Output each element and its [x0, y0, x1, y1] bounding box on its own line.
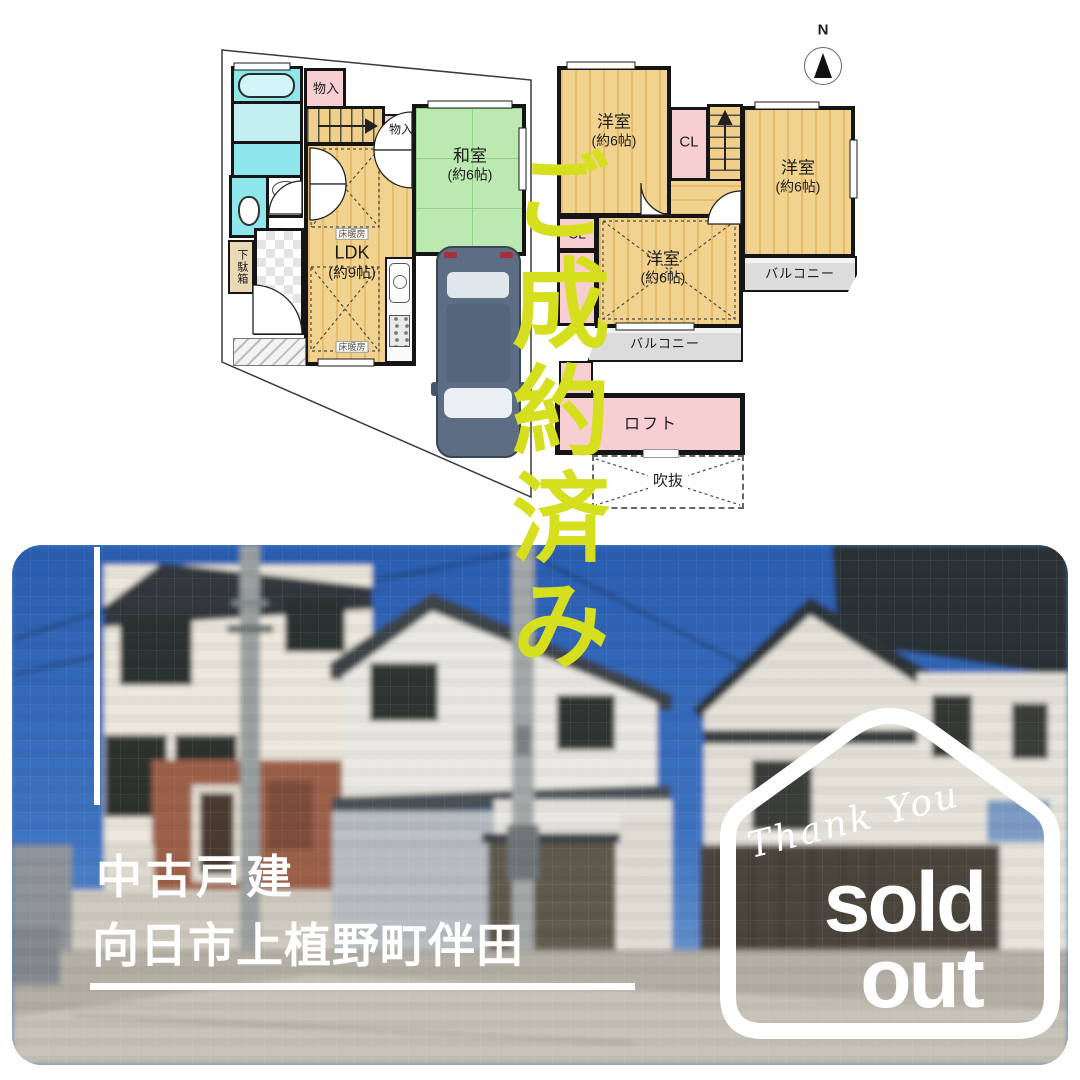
sink-icon — [272, 181, 299, 199]
label-closet-1f-b: 物入 — [389, 123, 413, 138]
porch-step — [233, 338, 306, 366]
property-address-text: 向日市上植野町伴田 — [92, 907, 524, 976]
contract-completed-stamp: ご成約済み — [501, 146, 604, 681]
label-closet-1f-a: 物入 — [313, 81, 339, 97]
label-floor-heating-1: 床暖房 — [335, 228, 368, 240]
sink-bowl-icon — [393, 275, 407, 289]
label-loft: ロフト — [624, 415, 678, 435]
out-text: out — [860, 936, 982, 1020]
property-type-text: 中古戸建 — [96, 841, 296, 907]
stairs-2f — [707, 104, 743, 185]
loft-hatch-opening — [643, 449, 679, 458]
label-bedroom-s: 洋室(約6帖) — [641, 249, 686, 288]
label-balcony-east: バルコニー — [765, 266, 835, 282]
sold-out-flyer: 物入 物入 和室(約6帖) LDK(約9帖) 床暖房 床暖房 下駄箱 洋室(約6… — [0, 0, 1080, 1080]
north-arrow-icon — [804, 47, 842, 85]
label-shoe-cabinet: 下駄箱 — [234, 249, 248, 285]
accent-horizontal-line — [90, 983, 635, 990]
label-japanese-room: 和室(約6帖) — [448, 146, 493, 185]
car-taillight-icon — [444, 252, 457, 258]
north-label: N — [818, 22, 829, 39]
label-bedroom-nw: 洋室(約6帖) — [592, 112, 637, 151]
label-ldk: LDK(約9帖) — [328, 242, 376, 283]
room-vanity — [231, 141, 303, 178]
room-washroom — [231, 101, 303, 144]
toilet-icon — [238, 196, 260, 226]
sold-out-badge: Thank You sold out — [705, 688, 1068, 1060]
label-balcony-south: バルコニー — [630, 336, 700, 352]
bathtub-icon — [238, 73, 295, 98]
entrance-tile — [254, 228, 304, 335]
label-bedroom-e: 洋室(約6帖) — [776, 158, 821, 197]
car-mirror — [431, 382, 438, 396]
label-void: 吹抜 — [648, 472, 688, 493]
label-closet-2f-center: CL — [679, 134, 698, 153]
label-floor-heating-2: 床暖房 — [335, 341, 368, 353]
accent-vertical-line — [94, 547, 100, 805]
stairs-1f — [304, 106, 385, 145]
hall-2f — [669, 179, 743, 217]
stove-icon — [389, 315, 410, 347]
